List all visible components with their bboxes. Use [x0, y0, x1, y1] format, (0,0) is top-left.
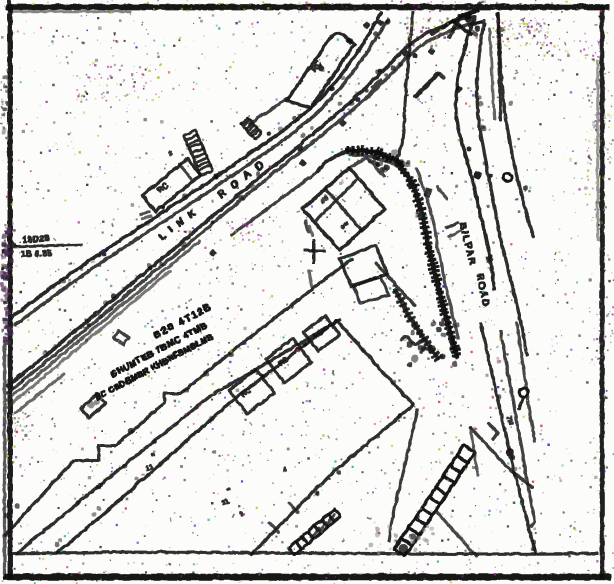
svg-text:1B 6.85: 1B 6.85	[20, 247, 52, 258]
svg-text:18D28: 18D28	[22, 233, 50, 244]
